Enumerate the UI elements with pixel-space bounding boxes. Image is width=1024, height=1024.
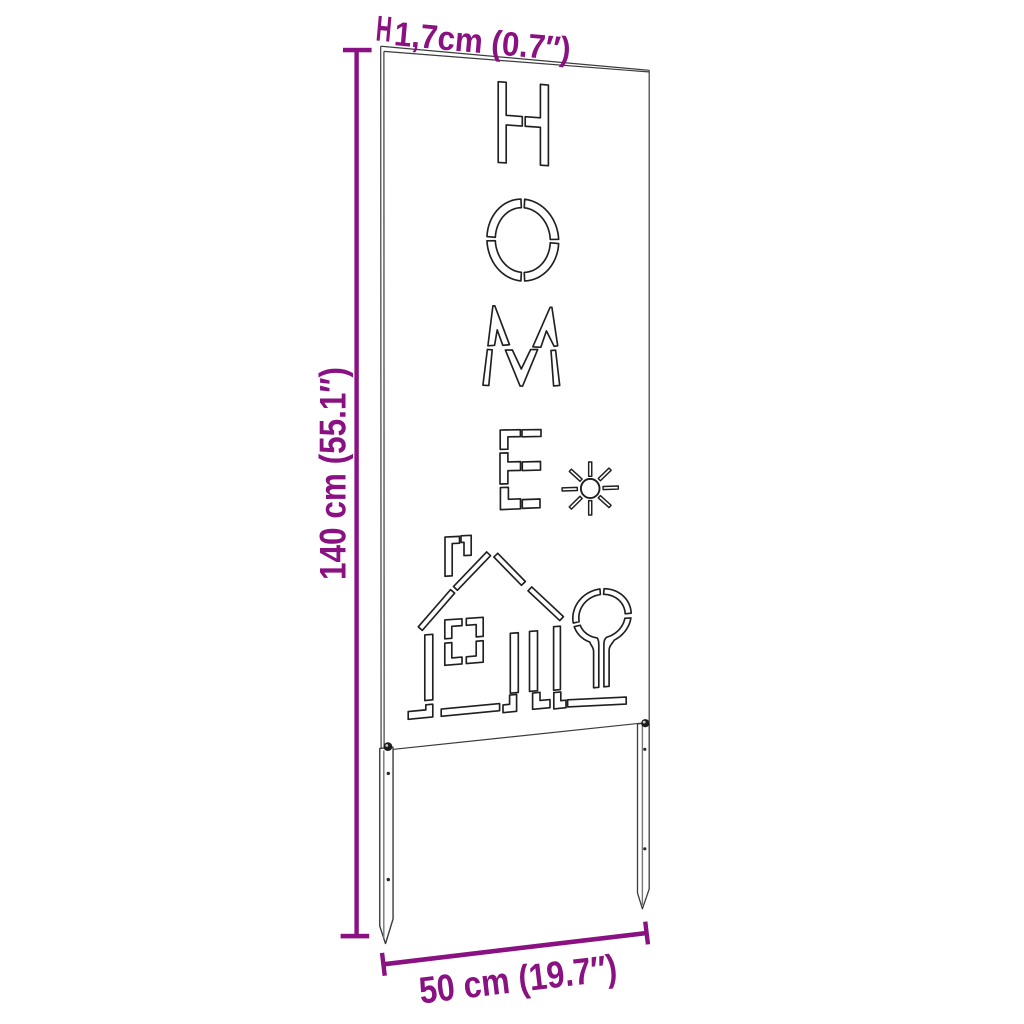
svg-text:140 cm (55.1″): 140 cm (55.1″) (312, 367, 353, 580)
